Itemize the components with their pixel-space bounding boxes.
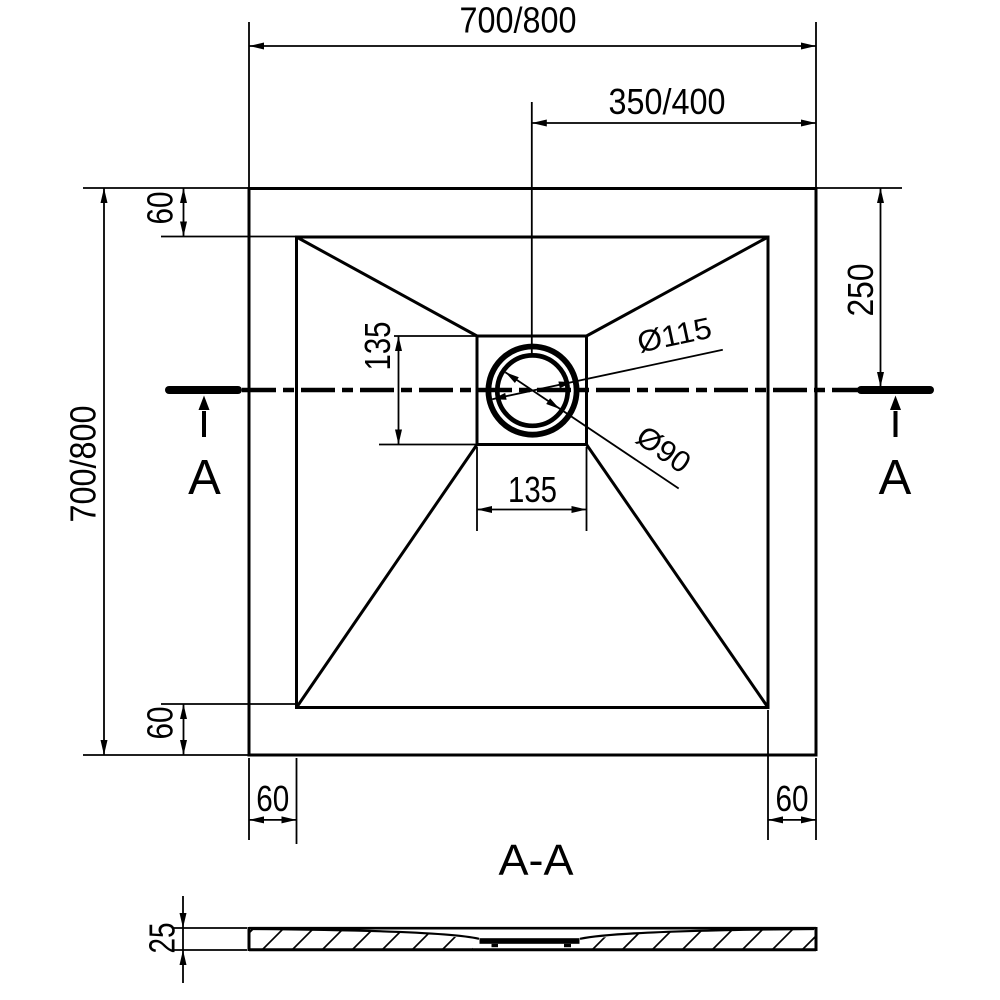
svg-text:A: A <box>188 451 221 505</box>
svg-text:A-A: A-A <box>499 836 575 885</box>
svg-text:135: 135 <box>508 469 557 510</box>
svg-text:250: 250 <box>840 264 881 317</box>
svg-text:60: 60 <box>256 778 289 819</box>
svg-text:135: 135 <box>357 322 398 371</box>
svg-text:60: 60 <box>140 707 181 740</box>
svg-text:25: 25 <box>142 923 183 954</box>
svg-text:700/800: 700/800 <box>460 0 577 41</box>
svg-text:350/400: 350/400 <box>609 81 726 122</box>
svg-text:700/800: 700/800 <box>63 406 104 523</box>
svg-text:A: A <box>879 451 912 505</box>
svg-text:60: 60 <box>776 778 809 819</box>
svg-text:60: 60 <box>140 192 181 225</box>
